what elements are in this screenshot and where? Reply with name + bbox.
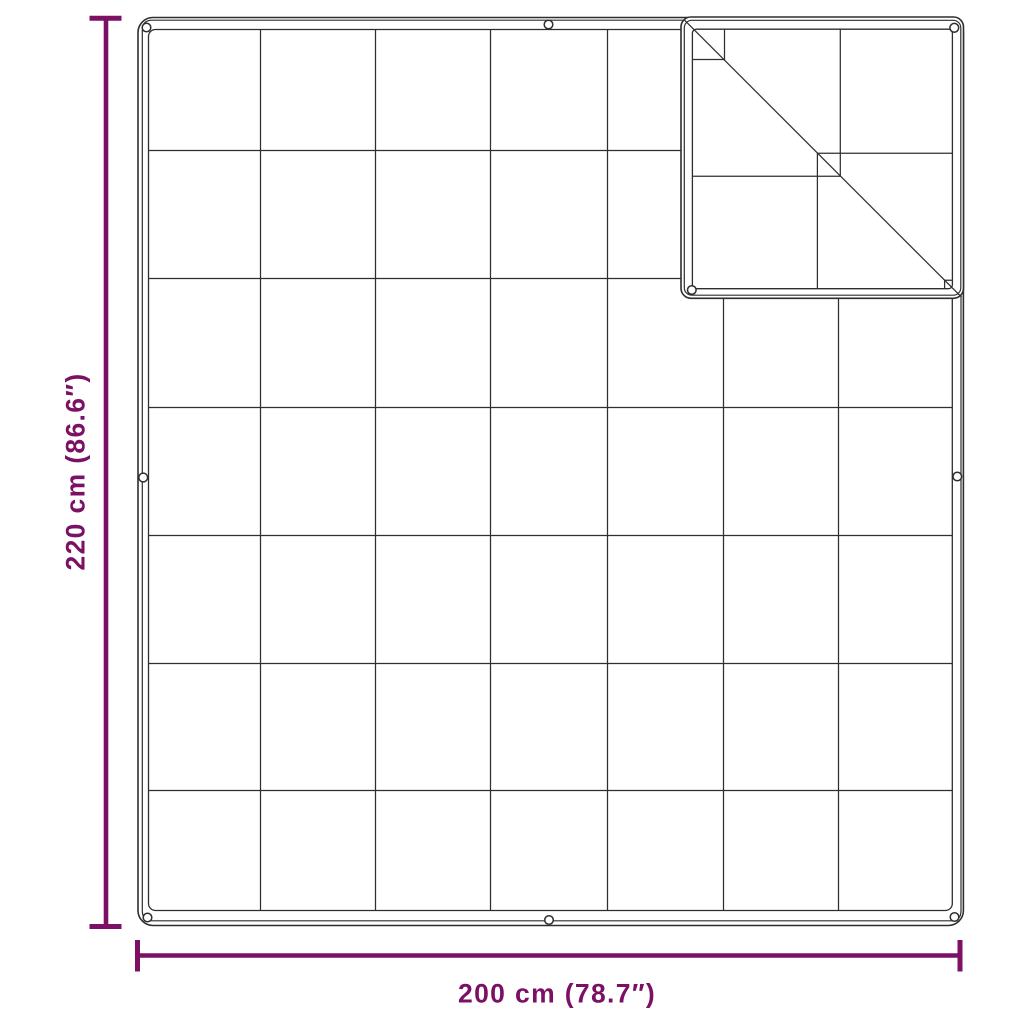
svg-text:200 cm (78.7″): 200 cm (78.7″)	[458, 979, 656, 1009]
svg-text:220 cm (86.6″): 220 cm (86.6″)	[61, 372, 91, 570]
